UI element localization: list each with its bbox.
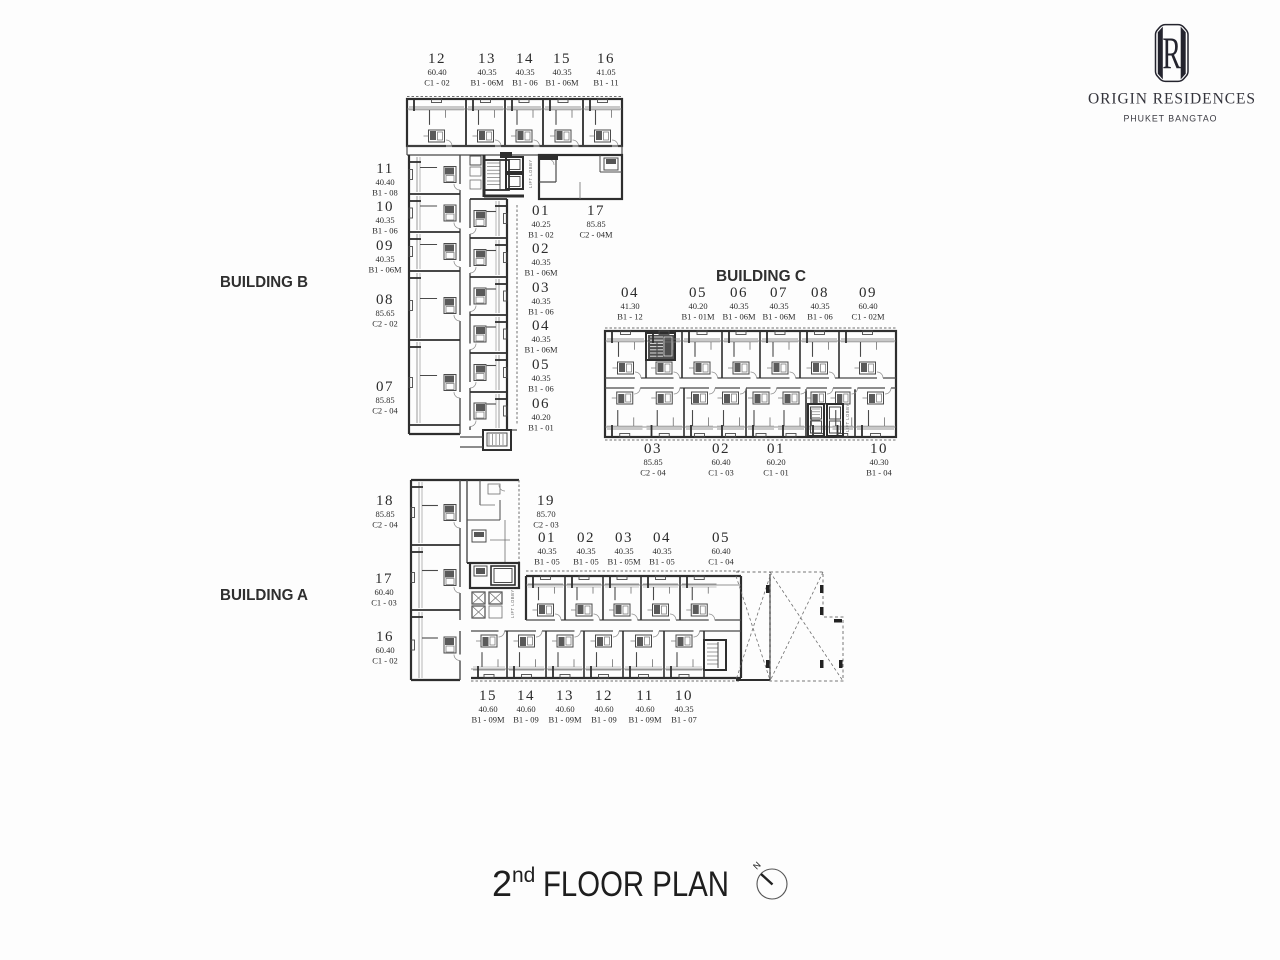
svg-text:0160.20C1 - 01: 0160.20C1 - 01 — [763, 441, 789, 478]
svg-text:0640.20B1 - 01: 0640.20B1 - 01 — [528, 396, 554, 433]
svg-text:0340.35B1 - 06: 0340.35B1 - 06 — [528, 280, 554, 317]
svg-text:2: 2 — [492, 863, 512, 904]
svg-text:LIFT LOBBY: LIFT LOBBY — [528, 159, 533, 188]
svg-text:0440.35B1 - 05: 0440.35B1 - 05 — [649, 530, 675, 567]
svg-text:1440.60B1 - 09: 1440.60B1 - 09 — [513, 688, 539, 725]
svg-text:0140.35B1 - 05: 0140.35B1 - 05 — [534, 530, 560, 567]
svg-text:1040.35B1 - 07: 1040.35B1 - 07 — [671, 688, 697, 725]
svg-text:PHUKET BANGTAO: PHUKET BANGTAO — [1124, 114, 1217, 124]
svg-text:0140.25B1 - 02: 0140.25B1 - 02 — [528, 203, 554, 240]
svg-text:R: R — [1162, 30, 1181, 79]
svg-text:1040.35B1 - 06: 1040.35B1 - 06 — [372, 199, 398, 236]
svg-text:BUILDING A: BUILDING A — [220, 587, 308, 604]
svg-text:0885.65C2 - 02: 0885.65C2 - 02 — [372, 292, 398, 329]
svg-text:LIFT LOBBY: LIFT LOBBY — [510, 589, 515, 618]
svg-text:1440.35B1 - 06: 1440.35B1 - 06 — [512, 51, 538, 88]
svg-text:1985.70C2 - 03: 1985.70C2 - 03 — [533, 493, 559, 530]
svg-text:ORIGIN RESIDENCES: ORIGIN RESIDENCES — [1088, 91, 1255, 108]
svg-text:1260.40C1 - 02: 1260.40C1 - 02 — [424, 51, 450, 88]
svg-text:nd: nd — [512, 864, 535, 887]
svg-text:1760.40C1 - 03: 1760.40C1 - 03 — [371, 571, 397, 608]
svg-text:1660.40C1 - 02: 1660.40C1 - 02 — [372, 629, 398, 666]
svg-text:0840.35B1 - 06: 0840.35B1 - 06 — [807, 285, 833, 322]
svg-text:FLOOR PLAN: FLOOR PLAN — [543, 865, 729, 904]
svg-text:1641.05B1 - 11: 1641.05B1 - 11 — [593, 51, 618, 88]
svg-text:0240.35B1 - 05: 0240.35B1 - 05 — [573, 530, 599, 567]
svg-text:BUILDING C: BUILDING C — [716, 268, 806, 285]
svg-text:0540.35B1 - 06: 0540.35B1 - 06 — [528, 357, 554, 394]
svg-text:1240.60B1 - 09: 1240.60B1 - 09 — [591, 688, 617, 725]
svg-text:0441.30B1 - 12: 0441.30B1 - 12 — [617, 285, 643, 322]
svg-text:0260.40C1 - 03: 0260.40C1 - 03 — [708, 441, 734, 478]
svg-text:BUILDING B: BUILDING B — [220, 274, 308, 291]
svg-text:LIFT LOBBY: LIFT LOBBY — [845, 403, 850, 432]
